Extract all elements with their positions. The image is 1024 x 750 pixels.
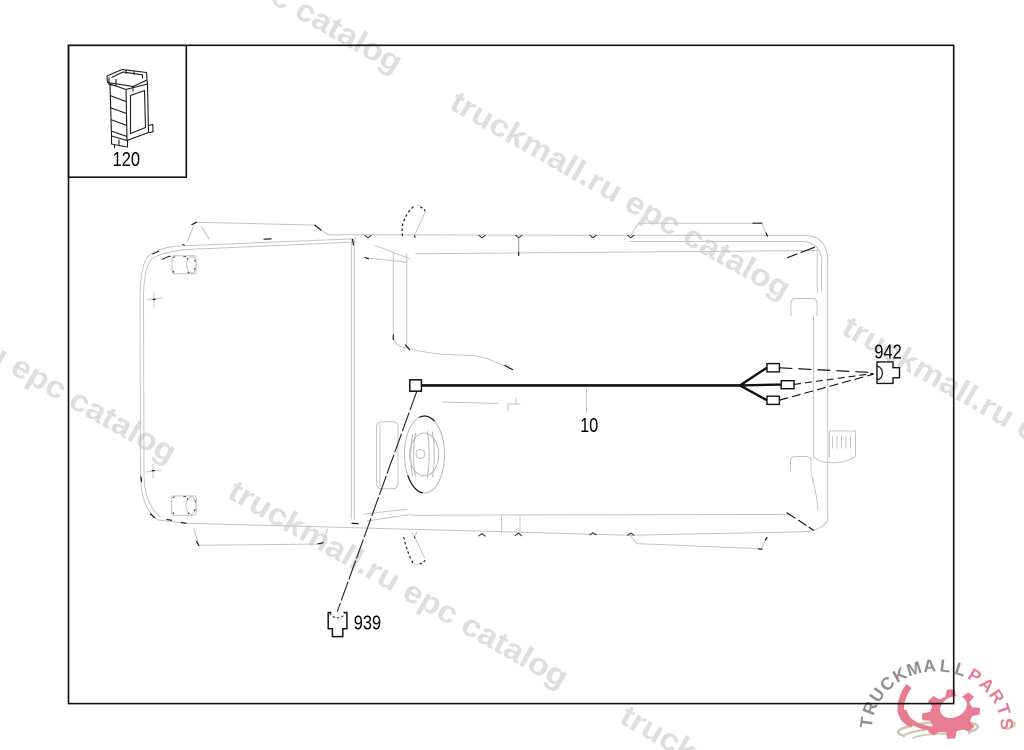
svg-text:A: A — [922, 655, 937, 676]
svg-text:10: 10 — [580, 414, 598, 437]
svg-text:S: S — [996, 717, 1017, 731]
svg-text:942: 942 — [874, 340, 902, 363]
svg-text:120: 120 — [113, 148, 140, 171]
svg-text:939: 939 — [354, 611, 381, 634]
